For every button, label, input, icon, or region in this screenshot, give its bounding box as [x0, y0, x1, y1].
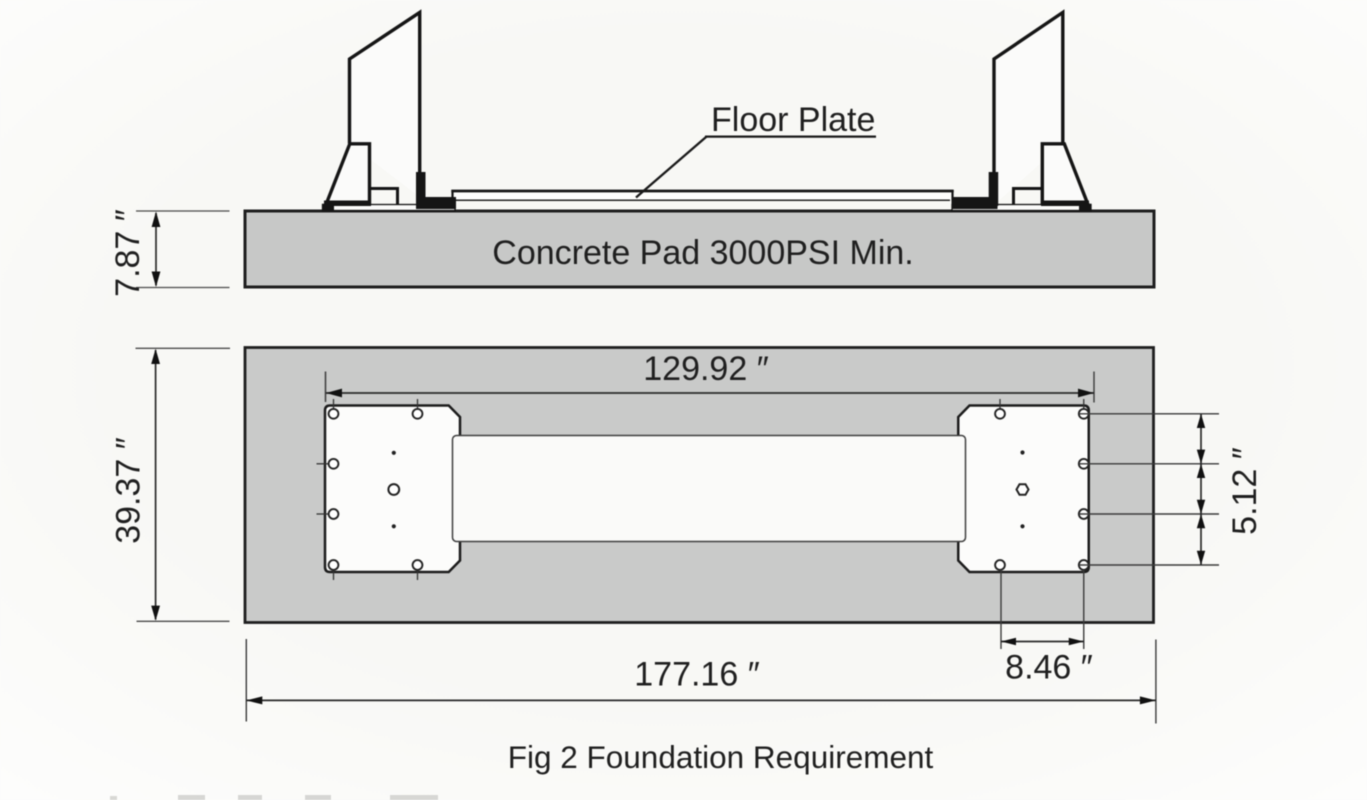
svg-text:39.37 ″: 39.37 ″ — [110, 437, 148, 544]
svg-text:Fig 2 Foundation Requirement: Fig 2 Foundation Requirement — [508, 739, 934, 775]
svg-text:7.87 ″: 7.87 ″ — [109, 209, 147, 297]
svg-text:8.46 ″: 8.46 ″ — [1005, 649, 1093, 687]
svg-text:Concrete Pad 3000PSI Min.: Concrete Pad 3000PSI Min. — [492, 234, 913, 272]
svg-text:5.12 ″: 5.12 ″ — [1226, 447, 1264, 535]
svg-text:129.92 ″: 129.92 ″ — [643, 350, 768, 388]
svg-text:177.16 ″: 177.16 ″ — [634, 656, 759, 694]
svg-text:Floor Plate: Floor Plate — [711, 101, 875, 139]
